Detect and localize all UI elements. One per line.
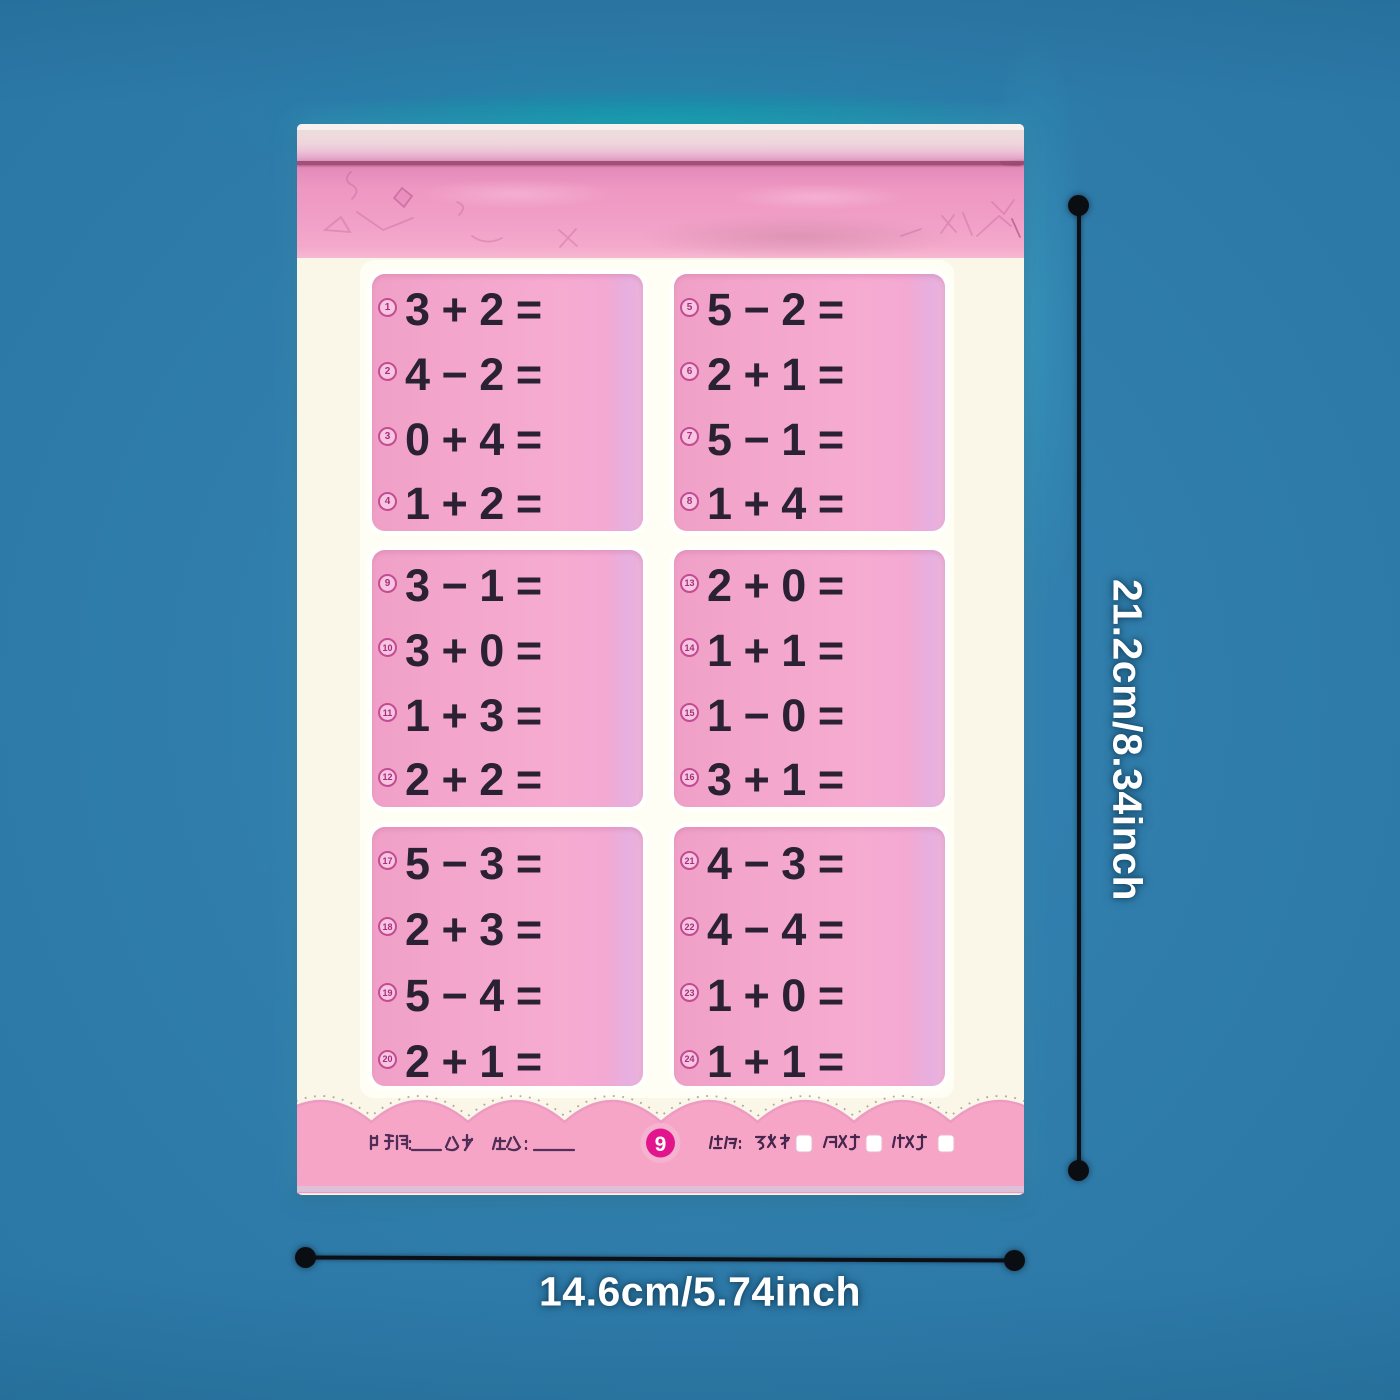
- svg-text:9: 9: [655, 1133, 667, 1156]
